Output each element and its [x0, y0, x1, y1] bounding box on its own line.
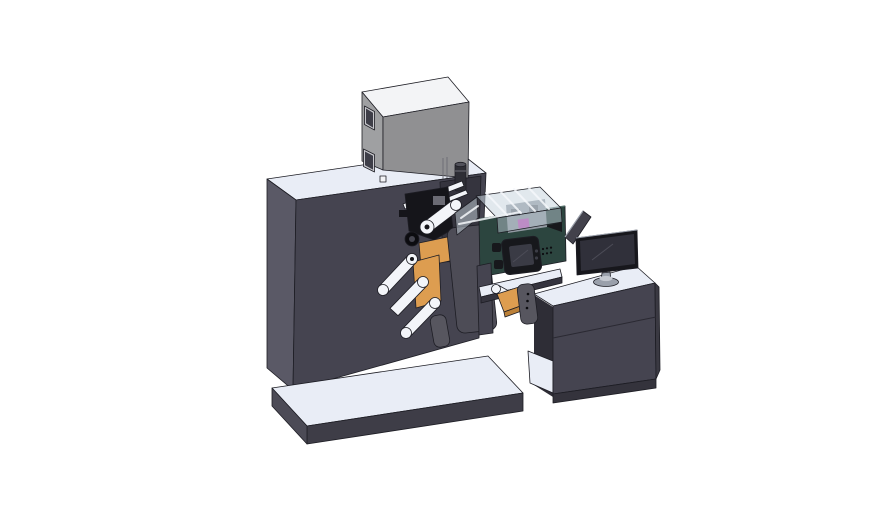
machine-scene: [0, 0, 888, 522]
impression-roller-hub: [425, 225, 430, 230]
monitor-base-cap: [600, 276, 613, 281]
drive-gear-hub: [409, 236, 415, 242]
cabinet-left-face: [267, 179, 296, 390]
hmi-button-2: [535, 256, 538, 259]
cylinder-cap: [455, 162, 466, 166]
impression-roller-end2: [451, 200, 462, 211]
idler-roller-3-disc: [430, 298, 441, 309]
vent-dot: [550, 252, 552, 254]
vent-dot: [542, 253, 544, 255]
vent-dot: [550, 247, 552, 249]
idler-roller-2-disc: [418, 277, 429, 288]
idler-roller-1-end: [378, 285, 389, 296]
ink-station-tab-2: [494, 260, 503, 269]
printhead-bracket: [399, 210, 408, 217]
ink-station-tab-1: [492, 243, 501, 252]
cad-render-canvas: [0, 0, 888, 522]
desk-right-face: [655, 283, 660, 379]
guide-plate-hole: [527, 293, 530, 296]
chute-roller-end: [492, 285, 501, 294]
vent-dot: [546, 247, 548, 249]
guide-plate-hole: [526, 307, 529, 310]
idler-roller-1-hub: [410, 257, 414, 261]
top-box: [362, 77, 469, 182]
vent-dot: [542, 248, 544, 250]
vent-dot: [546, 252, 548, 254]
idler-roller-3-end: [401, 328, 412, 339]
printhead-detail: [433, 196, 445, 205]
box-corner-tag: [380, 176, 386, 182]
hmi-button-1: [535, 249, 538, 252]
guide-plate-hole: [526, 300, 529, 303]
